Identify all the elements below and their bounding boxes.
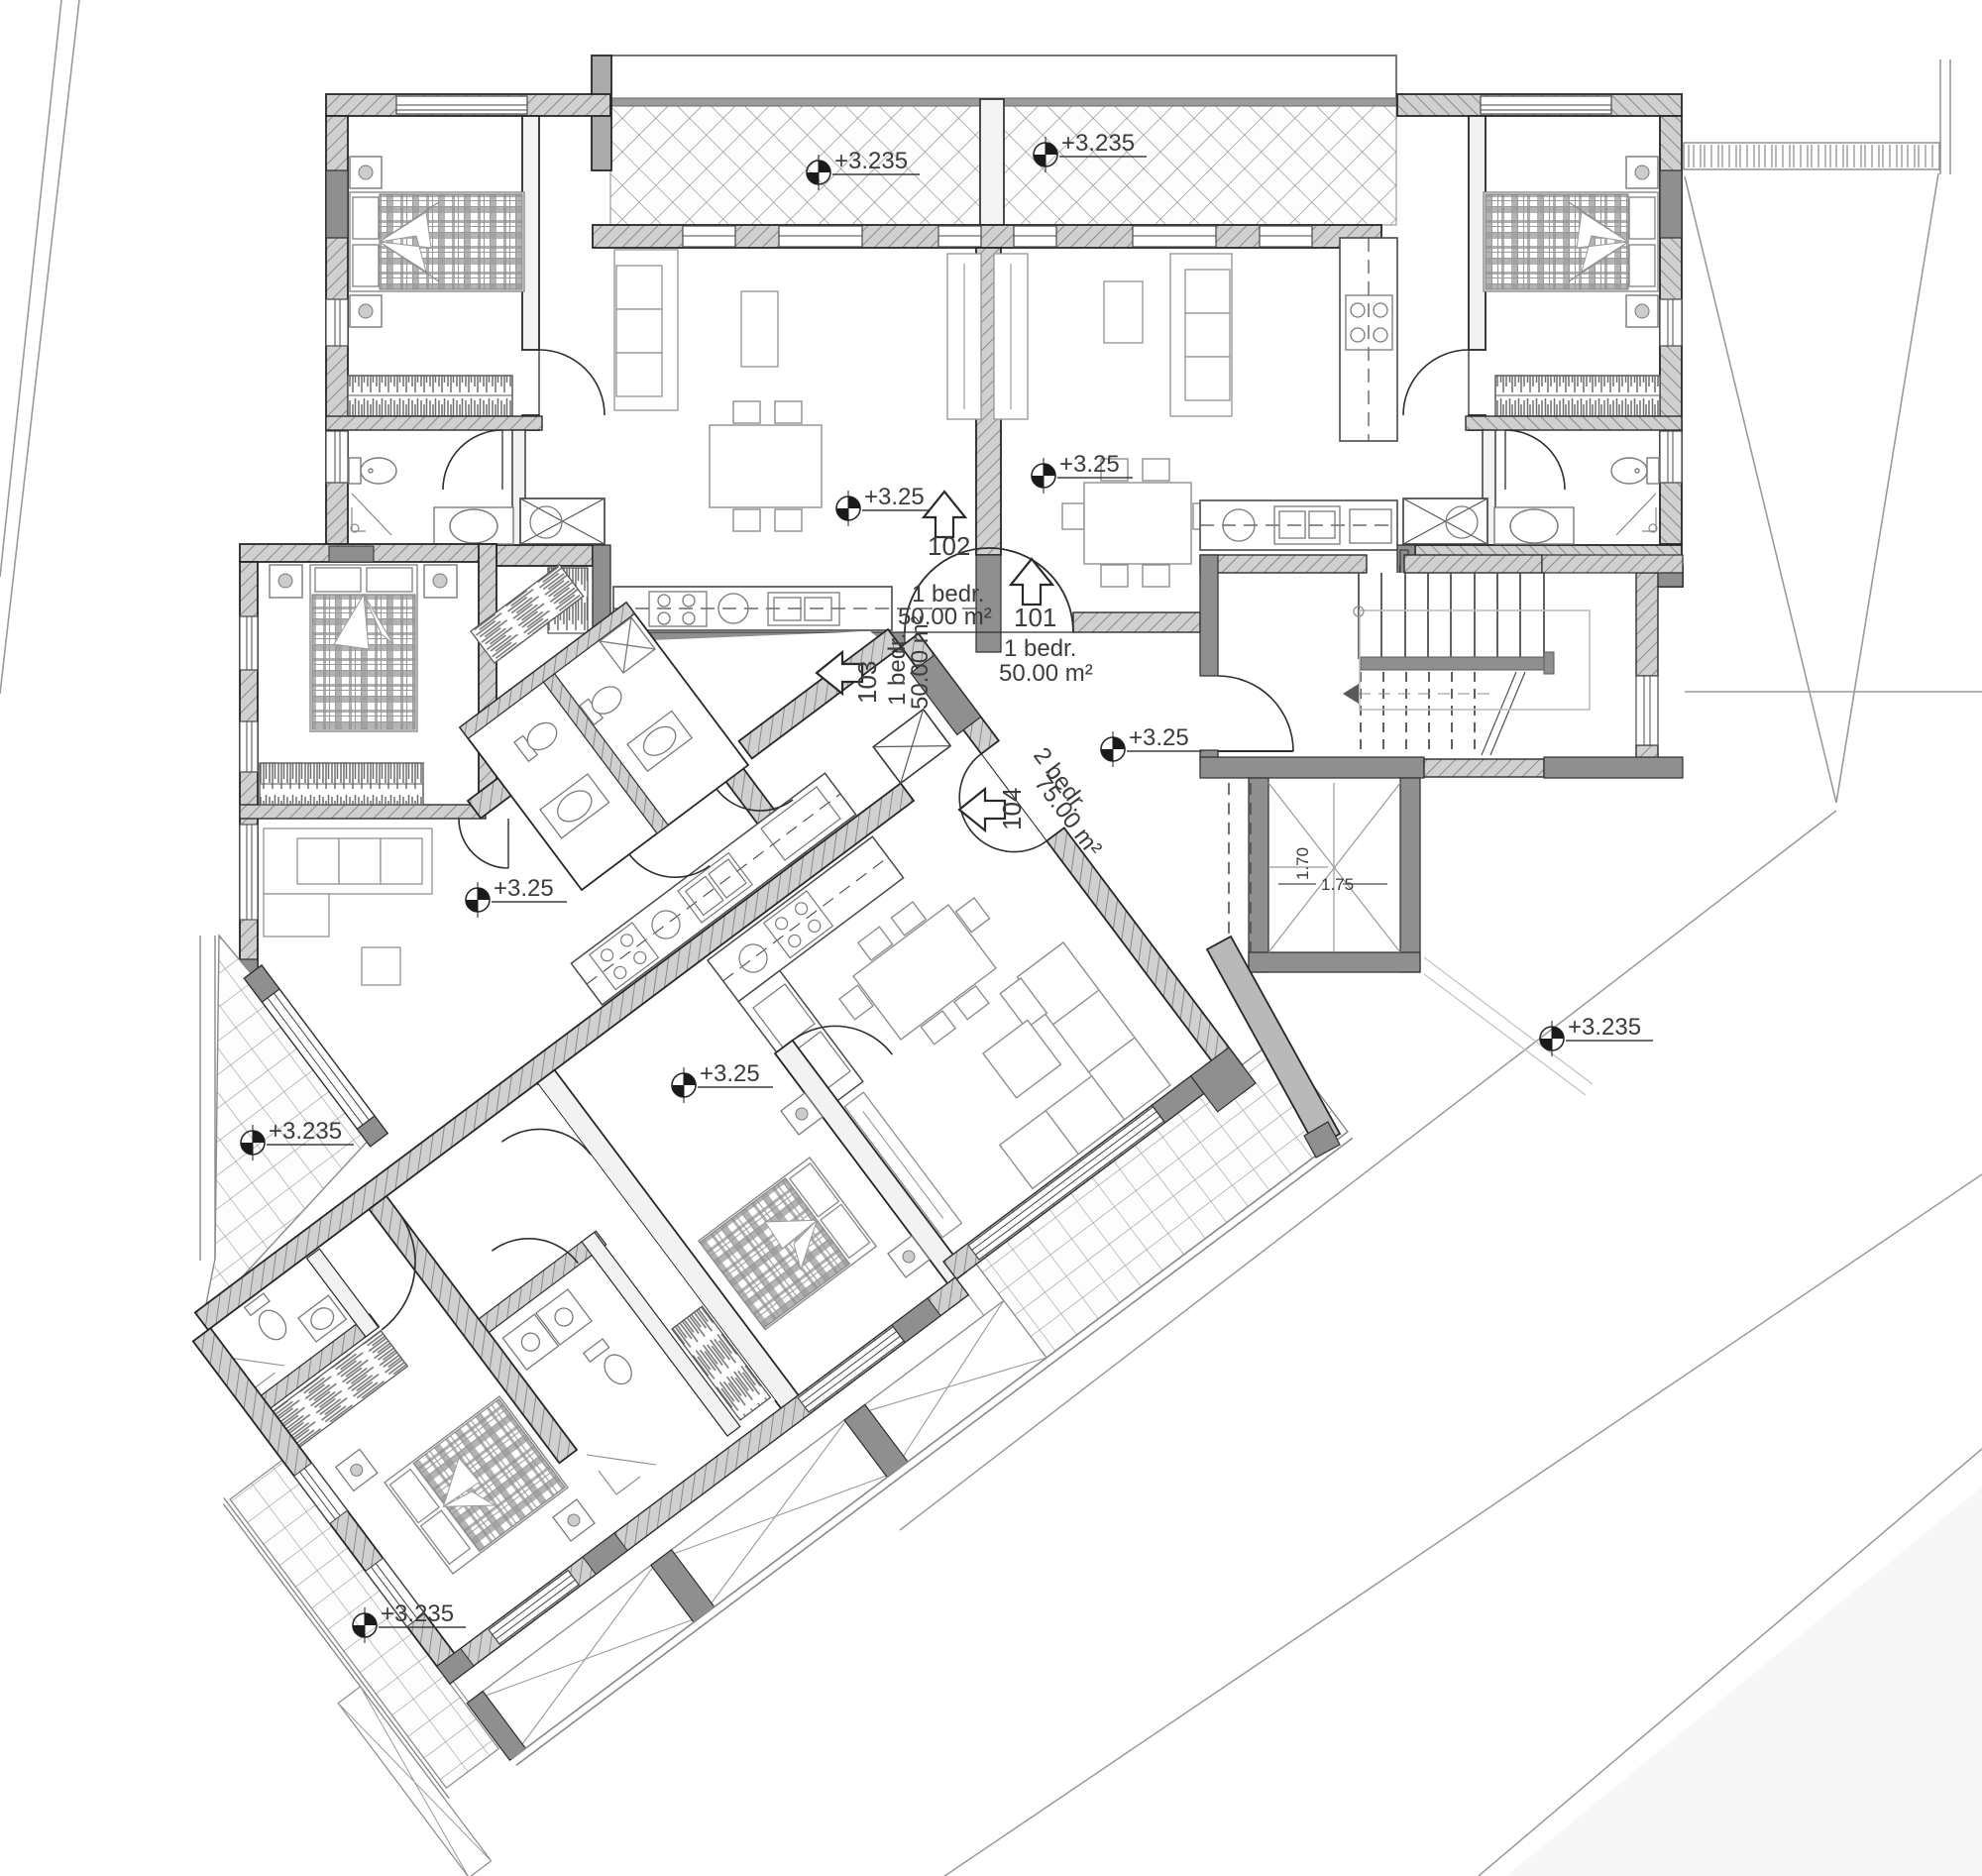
svg-text:101: 101 — [1014, 603, 1056, 632]
svg-text:+3.235: +3.235 — [834, 148, 908, 174]
svg-text:103: 103 — [852, 661, 882, 704]
svg-text:1 bedr.: 1 bedr. — [1004, 635, 1076, 662]
svg-text:+3.25: +3.25 — [864, 484, 925, 510]
svg-text:1.70: 1.70 — [1293, 847, 1312, 880]
svg-text:50.00 m²: 50.00 m² — [999, 660, 1093, 687]
svg-text:50.00 m²: 50.00 m² — [907, 615, 934, 710]
svg-text:102: 102 — [928, 531, 970, 561]
svg-text:104: 104 — [997, 788, 1027, 830]
